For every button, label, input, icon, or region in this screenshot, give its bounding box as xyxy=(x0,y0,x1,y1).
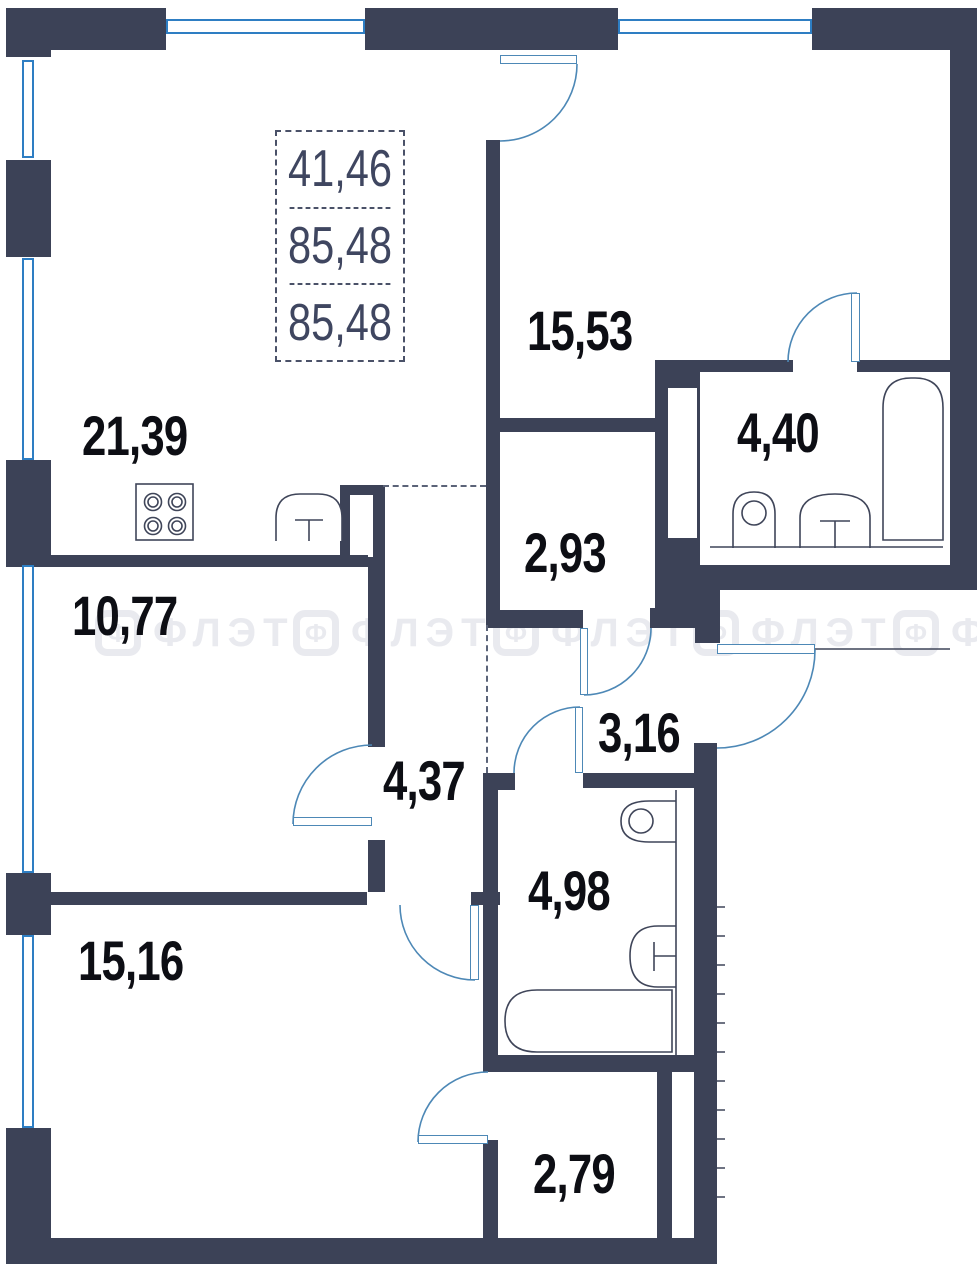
stove-burner-icon xyxy=(169,518,186,535)
watermark-text: ФЛЭТ xyxy=(951,610,977,656)
window xyxy=(22,258,34,460)
bathtub xyxy=(883,378,943,540)
watermark-logo-icon: Ф xyxy=(893,610,939,656)
duct-pillar-cavity xyxy=(350,495,373,557)
door-leaf xyxy=(293,817,372,826)
living-area-value: 41,46 xyxy=(290,132,391,207)
door-leaf xyxy=(500,55,577,64)
toilet xyxy=(621,801,676,842)
door-leaf xyxy=(851,293,860,362)
room-label-storage: 2,79 xyxy=(533,1141,615,1206)
door-arc xyxy=(400,905,475,980)
door-leaf xyxy=(470,905,479,980)
door-arc xyxy=(500,64,577,141)
stove xyxy=(136,484,193,540)
room-label-bedroom-2: 15,16 xyxy=(78,928,183,993)
door-leaf xyxy=(575,707,583,773)
door-arc xyxy=(514,707,580,773)
door-leaf xyxy=(580,628,588,695)
wall-segment xyxy=(6,460,51,565)
wash-basin-tap xyxy=(654,942,676,971)
wall-segment xyxy=(6,1238,717,1264)
watermark: Ф ФЛЭТ xyxy=(293,610,493,656)
stove-burner-icon xyxy=(145,494,162,511)
overall-area-value: 85,48 xyxy=(290,283,391,360)
wall-ticks xyxy=(717,907,725,1197)
toilet xyxy=(733,492,775,548)
door-arc xyxy=(418,1072,488,1142)
watermark: Ф ФЛЭТ xyxy=(893,610,977,656)
total-area-value: 85,48 xyxy=(290,207,391,284)
zone-boundary-dashed xyxy=(486,625,488,773)
kitchen-sink xyxy=(276,494,342,541)
wall-segment xyxy=(950,8,977,590)
wash-basin xyxy=(800,494,870,548)
wall-segment xyxy=(6,160,51,257)
wash-basin-tap xyxy=(820,521,850,548)
wall-segment xyxy=(700,360,793,372)
wall-segment xyxy=(583,773,697,788)
wall-segment xyxy=(486,140,500,628)
door-leaf xyxy=(418,1135,488,1144)
zone-boundary-dashed xyxy=(383,485,486,487)
bathtub xyxy=(505,990,672,1052)
room-label-hall: 3,16 xyxy=(598,700,680,765)
door-arc xyxy=(293,745,372,824)
room-label-bathroom-1: 4,40 xyxy=(737,400,819,465)
wash-basin xyxy=(630,926,676,987)
wall-segment xyxy=(471,892,500,905)
wall-segment xyxy=(6,892,367,905)
stove-burner-icon xyxy=(169,494,186,511)
window xyxy=(22,565,34,873)
toilet-bowl xyxy=(742,501,766,525)
wall-segment xyxy=(6,8,51,57)
kitchen-sink-tap xyxy=(295,520,323,541)
wall-segment xyxy=(500,610,583,628)
window xyxy=(22,60,34,158)
wall-segment xyxy=(483,1140,498,1238)
window xyxy=(618,19,812,34)
wall-segment xyxy=(694,743,717,1264)
wall-segment xyxy=(368,840,385,892)
area-summary-box: 41,46 85,48 85,48 xyxy=(275,130,405,362)
wall-segment xyxy=(486,418,672,432)
wall-segment xyxy=(6,555,368,567)
wall-segment xyxy=(857,360,950,372)
watermark-logo-icon: Ф xyxy=(293,610,339,656)
floor-plan: Ф ФЛЭТ Ф ФЛЭТ Ф ФЛЭТ Ф ФЛЭТ Ф ФЛЭТ xyxy=(0,0,977,1264)
room-label-wardrobe: 2,93 xyxy=(524,520,606,585)
ventilation-shaft xyxy=(668,388,697,538)
stove-burner-icon xyxy=(145,518,162,535)
window xyxy=(166,19,365,34)
wall-segment xyxy=(365,8,618,50)
wall-segment xyxy=(493,1055,694,1072)
room-label-bedroom-1: 15,53 xyxy=(527,298,632,363)
room-label-room-2: 10,77 xyxy=(72,583,177,648)
wall-segment xyxy=(695,590,720,643)
wall-segment xyxy=(483,773,515,790)
wall-segment xyxy=(483,790,498,1072)
room-label-hallway: 4,37 xyxy=(383,748,465,813)
wall-segment xyxy=(650,608,700,628)
door-arc xyxy=(717,650,815,748)
entrance-door-leaf xyxy=(717,644,815,654)
wall-segment xyxy=(700,565,977,590)
window xyxy=(22,935,34,1128)
room-label-living-kitchen: 21,39 xyxy=(82,403,187,468)
wall-segment xyxy=(657,1072,672,1238)
door-arc xyxy=(788,293,857,362)
toilet-bowl xyxy=(629,809,653,833)
room-label-bathroom-2: 4,98 xyxy=(528,858,610,923)
